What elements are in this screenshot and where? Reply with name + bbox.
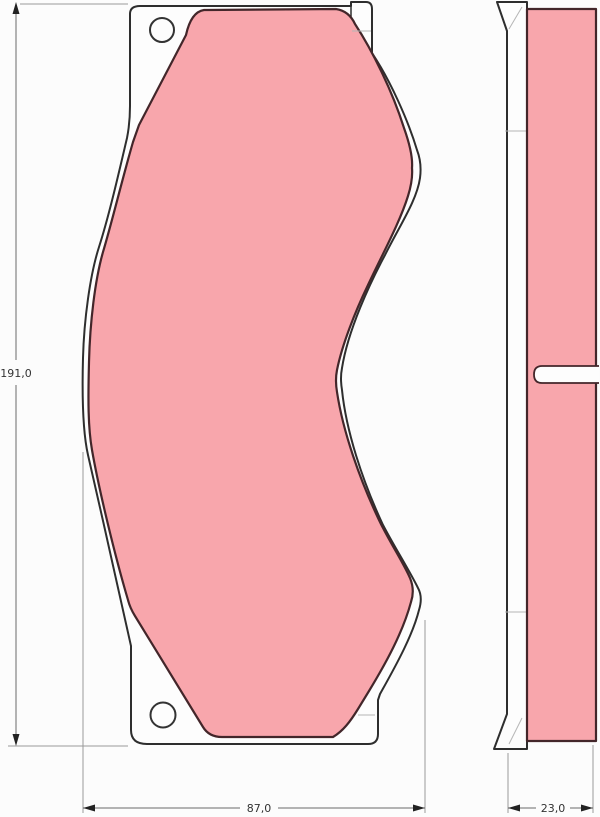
thickness-arrow-left-icon [508,805,520,812]
thickness-arrow-right-icon [581,805,593,812]
side-backplate [494,2,527,749]
height-arrow-down-icon [13,734,20,746]
height-arrow-up-icon [13,2,20,14]
wear-slot [534,366,599,383]
thickness-dimension: 23,0 [508,745,593,815]
rivet-hole-top [150,18,174,42]
thickness-dimension-label: 23,0 [541,802,566,815]
width-dimension-label: 87,0 [247,802,272,815]
brake-pad-drawing: 191,0 87,0 23,0 [0,0,600,817]
front-view [83,2,421,744]
height-dimension-label: 191,0 [0,367,32,380]
rivet-hole-bottom [151,703,176,728]
width-arrow-right-icon [413,805,425,812]
side-view [494,2,599,749]
width-arrow-left-icon [83,805,95,812]
